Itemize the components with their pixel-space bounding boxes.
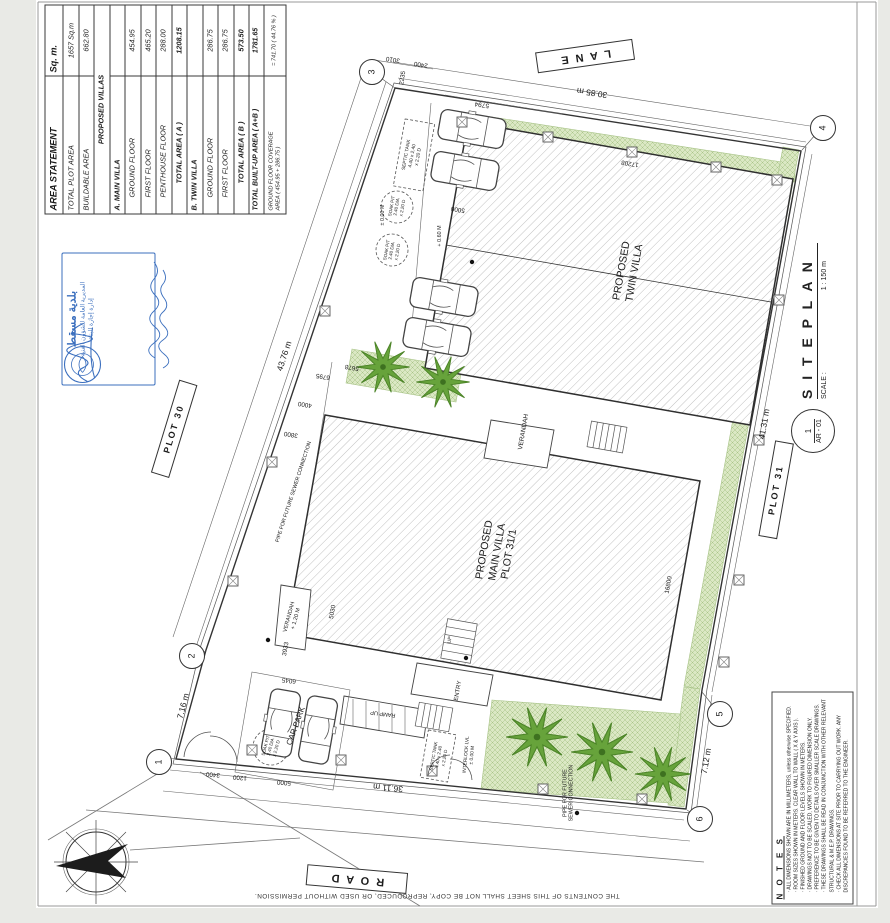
drawing-number-bubble: 1 AR - 01 — [791, 409, 835, 453]
area-row: TOTAL AREA ( B )573.50 — [234, 5, 249, 214]
area-row-label: PROPOSED VILLAS — [94, 5, 109, 214]
area-row-value: 286.75 — [218, 5, 233, 76]
grid-bubble-number: 6 — [695, 816, 705, 821]
area-row-label: FIRST FLOOR — [218, 76, 233, 214]
area-row-label: BUILDABLE AREA — [79, 76, 94, 214]
area-row-value: 288.00 — [156, 5, 171, 76]
notes-block: N O T E S ALL DIMENSIONS SHOWN ARE IN MI… — [772, 688, 858, 905]
area-row-value: 286.75 — [203, 5, 218, 76]
area-row-label: TOTAL BUILT-UP AREA ( A+B ) — [249, 76, 264, 214]
dimension-label: 5000 — [277, 778, 292, 787]
drawing-sheet: L A N ER O A DPLOT 30PLOT 3130.85 m43.76… — [0, 0, 890, 923]
area-row: TOTAL BUILT-UP AREA ( A+B )1781.65 — [249, 5, 264, 214]
area-statement-unit: Sq. m. — [45, 5, 63, 76]
area-row-value: 1781.65 — [249, 5, 264, 76]
area-row: GROUND FLOOR454.95 — [125, 5, 140, 214]
note-item: ALL DIMENSIONS SHOWN ARE IN MILLIMETERS,… — [787, 697, 794, 893]
area-row-value: 465.20 — [141, 5, 156, 76]
title-block: 1 AR - 01 S I T E P L A N SCALE : 1 : 15… — [791, 243, 849, 453]
note-item: DRAWINGS NOT TO BE SCALED, WORK TO FIGUR… — [808, 697, 815, 893]
area-row-label: TOTAL AREA ( A ) — [172, 76, 187, 214]
area-row-value: 454.95 — [125, 5, 140, 76]
area-row-label: PENTHOUSE FLOOR — [156, 76, 171, 214]
area-row-value: 662.80 — [79, 5, 94, 76]
area-row: PROPOSED VILLAS — [94, 5, 109, 214]
area-row-label: GROUND FLOOR COVERAGE AREA ( 454.95 + 28… — [264, 76, 286, 214]
grid-bubble-number: 2 — [187, 653, 197, 658]
car-icon — [295, 694, 341, 765]
drawing-title: S I T E P L A N — [799, 243, 818, 399]
area-row: TOTAL AREA ( A )1208.15 — [172, 5, 187, 214]
municipality-stamp: بلدية مسقط المديرية العامة للشؤون الفنية… — [62, 251, 158, 386]
grid-bubble-4: 4 — [810, 115, 836, 141]
grid-bubble-1: 1 — [146, 749, 172, 775]
area-row-label: A. MAIN VILLA — [110, 76, 125, 214]
dimension-label: 3400 — [206, 770, 221, 779]
signature-scribble-icon — [62, 320, 102, 386]
area-row: GROUND FLOOR286.75 — [203, 5, 218, 214]
area-row-label: TOTAL PLOT AREA — [63, 76, 78, 214]
note-item: ROOM SIZES SHOWN IN METERS. CLEAR WALL T… — [794, 697, 801, 893]
area-row-value: 573.50 — [234, 5, 249, 76]
area-row-value — [110, 5, 125, 76]
notes-title: N O T E S — [776, 697, 785, 900]
area-row-value — [187, 5, 202, 76]
copyright-note: THE CONTENTS OF THIS SHEET SHALL NOT BE … — [237, 892, 637, 899]
area-row-value: = 741.70 ( 44.76 % ) — [264, 5, 286, 76]
grid-bubble-number: 4 — [818, 125, 828, 130]
note-item: PREFERENCE TO BE GIVEN TO DETAILS OVER S… — [815, 697, 822, 893]
drawing-number: 1 — [804, 419, 815, 443]
scale-label: SCALE : — [821, 372, 828, 399]
dimension-label: 6045 — [282, 675, 297, 684]
area-row: BUILDABLE AREA662.80 — [79, 5, 94, 214]
area-row-label: GROUND FLOOR — [125, 76, 140, 214]
grid-bubble-6: 6 — [687, 806, 713, 832]
scale-value: 1 : 150 m — [821, 261, 828, 290]
area-statement-table: AREA STATEMENT Sq. m. TOTAL PLOT AREA165… — [45, 5, 290, 215]
plan-annotation: UP — [446, 636, 453, 644]
compass-icon — [54, 820, 138, 904]
area-row: PENTHOUSE FLOOR288.00 — [156, 5, 171, 214]
grid-bubble-number: 3 — [367, 69, 377, 74]
sheet-code: AR - 01 — [815, 419, 823, 443]
grid-bubble-number: 5 — [715, 711, 725, 716]
area-row: FIRST FLOOR465.20 — [141, 5, 156, 214]
area-row-label: FIRST FLOOR — [141, 76, 156, 214]
grid-bubble-5: 5 — [707, 701, 733, 727]
area-statement-title: AREA STATEMENT — [45, 76, 63, 214]
note-item: FINISHED GROUND AND FLOOR LEVELS SHOWN I… — [801, 697, 808, 893]
note-item: THESE DRAWINGS SHALL BE READ IN CONJUNCT… — [822, 697, 836, 893]
dimension-label: 1200 — [233, 773, 248, 782]
area-row-label: TOTAL AREA ( B ) — [234, 76, 249, 214]
area-row: B. TWIN VILLA — [187, 5, 202, 214]
area-row-label: GROUND FLOOR — [203, 76, 218, 214]
grid-bubble-number: 1 — [154, 759, 164, 764]
plan-annotation: ± 0.00 M — [380, 205, 386, 226]
area-row: GROUND FLOOR COVERAGE AREA ( 454.95 + 28… — [264, 5, 286, 214]
plan-annotation: + 0.60 M — [437, 225, 443, 246]
area-row-value: 1208.15 — [172, 5, 187, 76]
area-row: A. MAIN VILLA — [110, 5, 125, 214]
area-row-value: 1657 Sq.m — [63, 5, 78, 76]
area-row: TOTAL PLOT AREA1657 Sq.m — [63, 5, 78, 214]
area-row-label: B. TWIN VILLA — [187, 76, 202, 214]
grid-bubble-2: 2 — [179, 643, 205, 669]
area-row: FIRST FLOOR286.75 — [218, 5, 233, 214]
grid-bubble-3: 3 — [359, 59, 385, 85]
note-item: CHECK ALL DIMENSIONS AT SITE PRIOR TO CA… — [836, 697, 850, 893]
pipe-note: PIPE FOR FUTURE SEWER CONNECTION — [563, 765, 576, 822]
